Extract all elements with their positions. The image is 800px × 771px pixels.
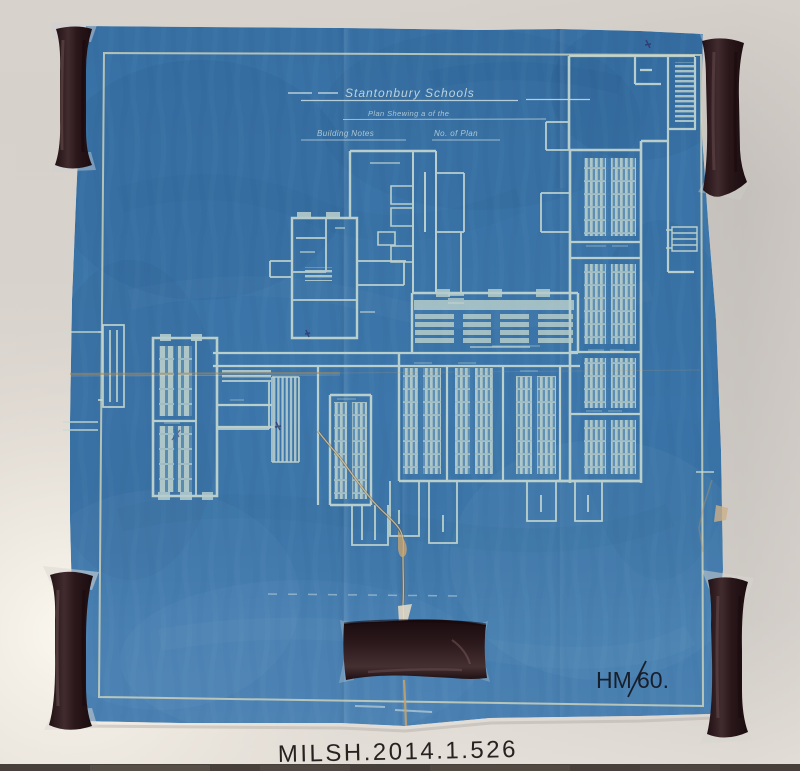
svg-text:Building Notes: Building Notes: [317, 129, 374, 138]
svg-text:No. of Plan: No. of Plan: [434, 129, 478, 138]
svg-text:Plan Shewing a of the: Plan Shewing a of the: [368, 109, 449, 118]
svg-text:HM: HM: [596, 667, 632, 693]
svg-text:Stantonbury Schools: Stantonbury Schools: [345, 86, 475, 100]
svg-text:60.: 60.: [637, 667, 669, 693]
svg-text:MILSH.2014.1.526: MILSH.2014.1.526: [278, 736, 519, 768]
